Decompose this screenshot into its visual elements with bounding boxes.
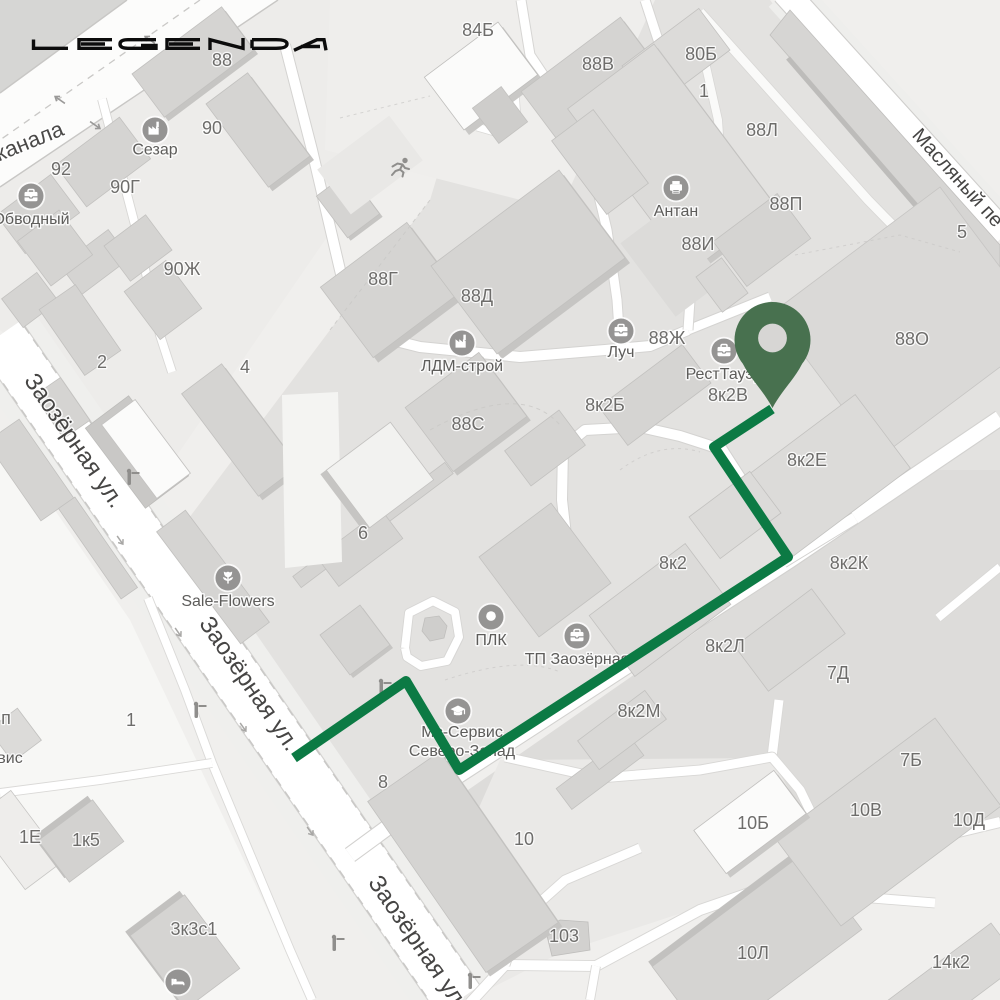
svg-text:80Б: 80Б	[685, 44, 717, 64]
svg-text:88Ж: 88Ж	[649, 328, 686, 348]
svg-text:ЛДМ-строй: ЛДМ-строй	[421, 358, 503, 375]
svg-text:7Б: 7Б	[900, 750, 922, 770]
svg-text:8: 8	[378, 772, 388, 792]
svg-text:Антан: Антан	[654, 203, 698, 220]
svg-text:1к5: 1к5	[72, 830, 100, 850]
svg-text:вис: вис	[0, 750, 23, 767]
svg-text:88И: 88И	[682, 234, 715, 254]
svg-text:4: 4	[240, 357, 250, 377]
svg-text:90Ж: 90Ж	[164, 259, 201, 279]
svg-text:88С: 88С	[451, 414, 484, 434]
svg-text:Сезар: Сезар	[132, 142, 177, 159]
svg-text:88П: 88П	[770, 194, 803, 214]
svg-text:8к2М: 8к2М	[618, 701, 661, 721]
svg-text:8к2Б: 8к2Б	[585, 395, 625, 415]
svg-text:90: 90	[202, 118, 222, 138]
svg-text:10Л: 10Л	[737, 943, 769, 963]
svg-text:8к2Е: 8к2Е	[787, 450, 827, 470]
svg-text:8к2: 8к2	[659, 553, 687, 573]
svg-text:8к2Л: 8к2Л	[705, 636, 745, 656]
svg-text:10Б: 10Б	[737, 813, 769, 833]
svg-text:1Е: 1Е	[19, 827, 41, 847]
svg-text:Обводный: Обводный	[0, 211, 70, 228]
svg-text:88В: 88В	[582, 54, 614, 74]
svg-text:10: 10	[514, 829, 534, 849]
svg-text:1: 1	[126, 710, 136, 730]
svg-text:88Л: 88Л	[746, 120, 778, 140]
svg-text:84Б: 84Б	[462, 20, 494, 40]
svg-text:8к2В: 8к2В	[708, 385, 748, 405]
svg-text:88О: 88О	[895, 329, 929, 349]
svg-text:п: п	[1, 708, 11, 728]
svg-text:8к2К: 8к2К	[830, 553, 869, 573]
svg-text:5: 5	[957, 222, 967, 242]
svg-text:103: 103	[549, 926, 579, 946]
svg-text:3к3с1: 3к3с1	[171, 919, 218, 939]
svg-text:Sale-Flowers: Sale-Flowers	[181, 593, 274, 610]
svg-text:88: 88	[212, 50, 232, 70]
svg-text:2: 2	[97, 352, 107, 372]
svg-text:90Г: 90Г	[110, 177, 140, 197]
svg-text:14к2: 14к2	[932, 952, 970, 972]
svg-text:6: 6	[358, 523, 368, 543]
svg-text:7Д: 7Д	[827, 663, 849, 683]
svg-text:10Д: 10Д	[953, 810, 985, 830]
svg-text:92: 92	[51, 159, 71, 179]
svg-text:1: 1	[699, 81, 709, 101]
svg-text:ПЛК: ПЛК	[475, 632, 507, 649]
svg-text:10В: 10В	[850, 800, 882, 820]
svg-text:88Д: 88Д	[461, 286, 493, 306]
svg-text:88Г: 88Г	[368, 269, 398, 289]
svg-text:Луч: Луч	[607, 344, 634, 361]
